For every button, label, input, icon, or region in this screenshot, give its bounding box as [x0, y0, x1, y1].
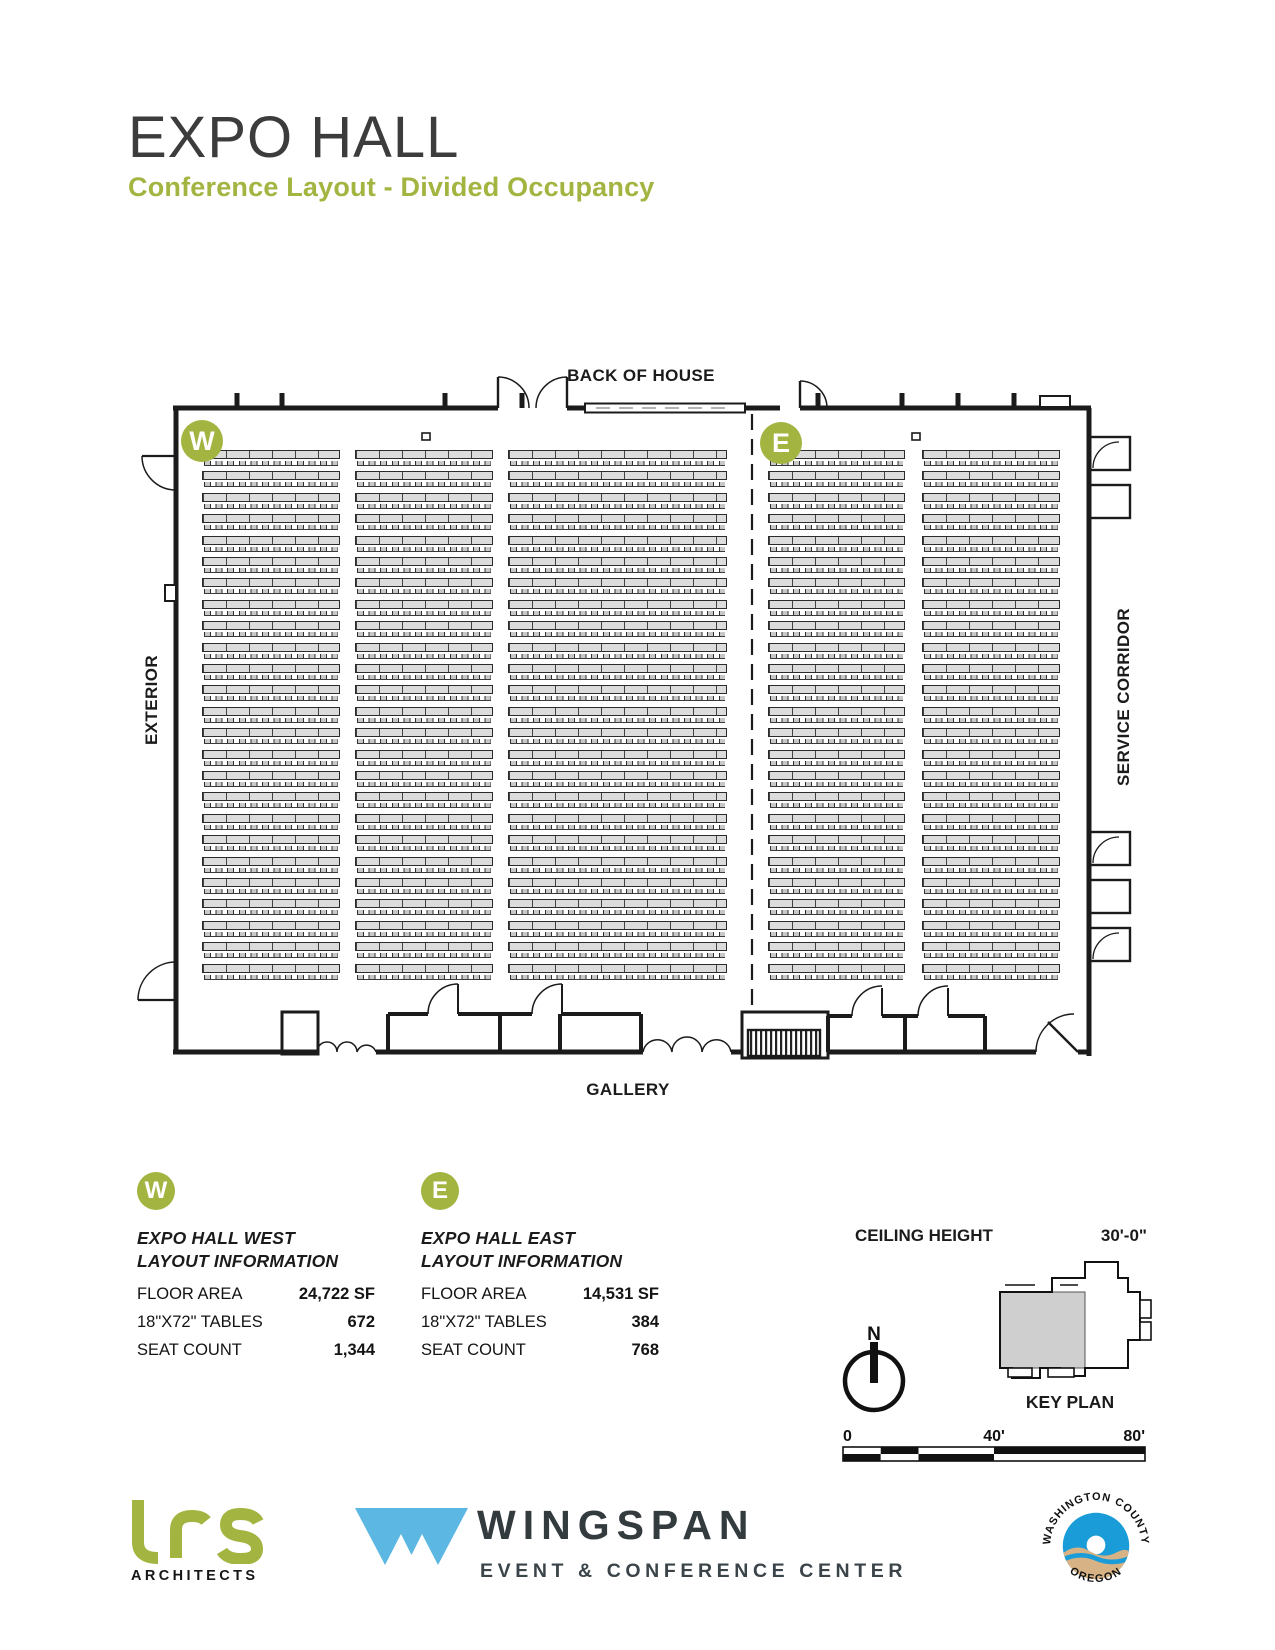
svg-text:80': 80'	[1123, 1428, 1145, 1445]
north-arrow: N	[845, 1324, 903, 1410]
svg-text:N: N	[867, 1324, 881, 1345]
svg-text:0: 0	[843, 1428, 852, 1445]
key-plan	[1000, 1262, 1151, 1378]
wingspan-logo-icon	[355, 1508, 468, 1565]
key-plan-label: KEY PLAN	[1026, 1392, 1114, 1413]
washington-county-seal: WASHINGTON COUNTY OREGON	[1042, 1491, 1150, 1599]
lrs-logo	[128, 1498, 278, 1564]
scale-bar: 0 40' 80'	[843, 1428, 1145, 1461]
wingspan-tagline: EVENT & CONFERENCE CENTER	[480, 1560, 907, 1583]
wingspan-name: WINGSPAN	[477, 1502, 755, 1549]
svg-text:40': 40'	[983, 1428, 1005, 1445]
lrs-architects-label: ARCHITECTS	[131, 1568, 258, 1584]
page: EXPO HALL Conference Layout - Divided Oc…	[0, 0, 1275, 1650]
